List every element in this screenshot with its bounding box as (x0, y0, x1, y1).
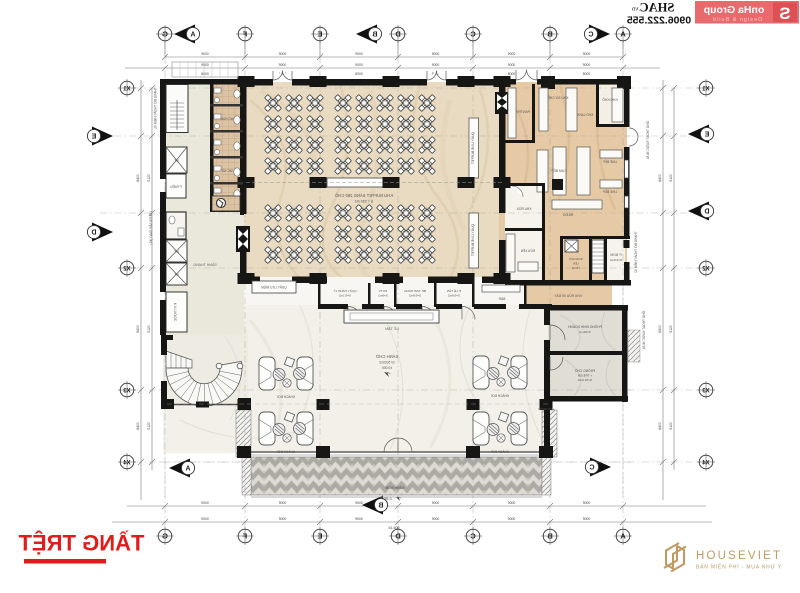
svg-text:PANTRY: PANTRY (515, 110, 530, 114)
svg-text:THANG BỘ THOÁT HIỂM 01: THANG BỘ THOÁT HIỂM 01 (153, 87, 158, 129)
svg-text:0906.222.555: 0906.222.555 (627, 15, 691, 27)
svg-text:WC NAM: WC NAM (220, 117, 234, 121)
svg-text:8000: 8000 (583, 72, 591, 76)
svg-text:9000: 9000 (279, 517, 287, 521)
svg-text:P. LỄ TÂN: P. LỄ TÂN (447, 288, 461, 293)
svg-text:X3: X3 (702, 388, 710, 394)
svg-text:BP. SNH HÀNG: BP. SNH HÀNG (404, 289, 426, 293)
svg-text:KHU BUFFET SÁNG 250 CHỖ: KHU BUFFET SÁNG 250 CHỖ (334, 193, 393, 198)
svg-text:A: A (620, 30, 626, 39)
svg-text:S=9.1m2: S=9.1m2 (339, 294, 351, 298)
svg-text:SOẠN ĐỒ: SOẠN ĐỒ (568, 256, 583, 261)
svg-text:9000: 9000 (355, 52, 363, 56)
svg-text:9000: 9000 (201, 501, 209, 505)
svg-text:9000: 9000 (432, 517, 440, 521)
svg-text:MT: MT (174, 273, 179, 277)
svg-text:F: F (242, 532, 247, 541)
svg-text:X3: X3 (123, 388, 131, 394)
svg-text:E: E (91, 134, 96, 141)
svg-text:C: C (588, 32, 593, 39)
svg-text:X2: X2 (123, 266, 131, 272)
svg-text:LÊN: LÊN (573, 261, 579, 266)
svg-text:G: G (162, 30, 168, 39)
svg-text:THANG BỘ THOÁT HIỂM 02: THANG BỘ THOÁT HIỂM 02 (633, 231, 638, 273)
svg-text:B: B (547, 532, 553, 541)
svg-text:8000: 8000 (508, 72, 516, 76)
svg-text:CỤM BẾP: CỤM BẾP (551, 168, 567, 173)
svg-text:Design & Build: Design & Build (712, 17, 762, 23)
svg-text:S = 530 m2: S = 530 m2 (355, 200, 373, 204)
svg-text:TẦNG TRỆT: TẦNG TRỆT (18, 531, 144, 556)
svg-text:8400: 8400 (136, 174, 140, 182)
svg-text:C: C (589, 465, 594, 472)
svg-text:9000: 9000 (583, 52, 591, 56)
svg-text:onHa Group: onHa Group (704, 4, 765, 16)
svg-text:B: B (378, 503, 383, 510)
svg-text:A: A (190, 32, 195, 39)
svg-text:E: E (317, 30, 322, 39)
svg-text:KHÁCH ĐỢI: KHÁCH ĐỢI (491, 394, 509, 398)
svg-text:8400: 8400 (658, 174, 662, 182)
svg-text:9000: 9000 (432, 501, 440, 505)
svg-text:9000: 9000 (355, 63, 363, 67)
svg-text:S=9.8m2: S=9.8m2 (610, 258, 622, 262)
svg-text:9000: 9000 (279, 52, 287, 56)
svg-text:S=533m2: S=533m2 (379, 361, 394, 365)
svg-text:9000: 9000 (355, 517, 363, 521)
svg-text:D: D (395, 532, 401, 541)
svg-text:S=32.6m2: S=32.6m2 (578, 378, 592, 382)
svg-text:9000: 9000 (508, 63, 516, 67)
svg-text:KHÁCH ĐỢI: KHÁCH ĐỢI (277, 395, 295, 399)
svg-text:9000: 9000 (355, 501, 363, 505)
svg-text:8000: 8000 (355, 72, 363, 76)
svg-text:+ TRẺ EM: + TRẺ EM (577, 373, 592, 378)
svg-text:E: E (704, 132, 709, 139)
svg-text:5120: 5120 (147, 325, 151, 333)
svg-text:8000: 8000 (201, 72, 209, 76)
svg-text:QUẦY LINE BUFFET: QUẦY LINE BUFFET (471, 132, 475, 164)
svg-text:LỄ TÂN: LỄ TÂN (385, 326, 398, 331)
svg-text:PHÒNG KINH DOANH: PHÒNG KINH DOANH (568, 324, 602, 329)
svg-text:9000: 9000 (508, 517, 516, 521)
svg-text:P ĐIỆN: P ĐIỆN (170, 184, 182, 189)
svg-text:S: S (779, 4, 790, 23)
svg-text:9000: 9000 (201, 63, 209, 67)
svg-text:9000: 9000 (201, 517, 209, 521)
svg-text:QUẦY LƯU NIỆM: QUẦY LƯU NIỆM (261, 285, 287, 290)
svg-text:KHO KHÔ: KHO KHÔ (602, 97, 618, 102)
svg-text:9000: 9000 (201, 52, 209, 56)
svg-text:S=61m2: S=61m2 (579, 330, 591, 334)
svg-text:9000: 9000 (583, 501, 591, 505)
svg-text:TẦNG: TẦNG (571, 266, 580, 270)
svg-text:9000: 9000 (508, 52, 516, 56)
svg-text:LINE BẾP: LINE BẾP (603, 159, 617, 164)
svg-text:LINE BẾP: LINE BẾP (603, 189, 617, 194)
svg-text:ỐNG THOÁT NƯỚC MƯA: ỐNG THOÁT NƯỚC MƯA (641, 311, 646, 350)
svg-text:D: D (704, 209, 709, 216)
svg-text:WC NỮ: WC NỮ (221, 168, 232, 173)
svg-text:KHU SƠ CHẾ: KHU SƠ CHẾ (547, 95, 569, 100)
svg-text:RA ĐỒ: RA ĐỒ (562, 212, 573, 217)
svg-text:5120: 5120 (669, 422, 673, 430)
svg-text:S=9.8m2: S=9.8m2 (409, 294, 421, 298)
svg-text:RỬA XÉN: RỬA XÉN (520, 248, 535, 253)
svg-text:LỐI RA SÂN GIAO (K1): LỐI RA SÂN GIAO (K1) (148, 211, 153, 244)
svg-text:C: C (470, 532, 476, 541)
svg-text:QUẦY HÀNH LÝ: QUẦY HÀNH LÝ (334, 289, 357, 293)
svg-text:5120: 5120 (669, 174, 673, 182)
svg-text:X1: X1 (123, 86, 131, 92)
svg-text:QUẦY LINE BUFFET: QUẦY LINE BUFFET (471, 224, 475, 256)
svg-text:SẢNH CHỜ: SẢNH CHỜ (375, 354, 398, 359)
svg-text:C: C (470, 30, 476, 39)
svg-text:P.KTV: P.KTV (378, 289, 387, 293)
svg-text:9000: 9000 (432, 63, 440, 67)
svg-text:KHU RỬA: KHU RỬA (516, 206, 532, 211)
svg-text:SẢNH ĐÓN: SẢNH ĐÓN (385, 485, 404, 490)
svg-text:KHU RỬA XE ĐẨY: KHU RỬA XE ĐẨY (554, 293, 582, 298)
svg-text:A: A (620, 532, 626, 541)
svg-text:KHO LẠNH: KHO LẠNH (576, 113, 593, 117)
svg-text:8400: 8400 (136, 325, 140, 333)
svg-text:5120: 5120 (147, 422, 151, 430)
svg-text:SHAC: SHAC (640, 1, 675, 15)
svg-text:E: E (317, 532, 322, 541)
svg-text:9000: 9000 (432, 52, 440, 56)
svg-text:ỐNG THOÁT NƯỚC MƯA: ỐNG THOÁT NƯỚC MƯA (645, 121, 650, 160)
svg-text:G: G (162, 532, 168, 541)
svg-text:9000: 9000 (279, 63, 287, 67)
svg-text:B: B (372, 32, 377, 39)
svg-text:MT: MT (174, 250, 179, 254)
svg-text:9000: 9000 (583, 517, 591, 521)
svg-text:S=9m2: S=9m2 (378, 294, 388, 298)
svg-text:X4: X4 (702, 460, 710, 466)
svg-text:A: A (185, 466, 190, 473)
svg-text:BẢN MIỄN PHÍ - MUA NHƯ Ý: BẢN MIỄN PHÍ - MUA NHƯ Ý (696, 564, 782, 571)
svg-text:5120: 5120 (147, 174, 151, 182)
svg-text:9000: 9000 (279, 501, 287, 505)
svg-text:P. KT NƯỚC: P. KT NƯỚC (173, 303, 178, 322)
svg-text:F: F (242, 30, 247, 39)
svg-text:8400: 8400 (658, 422, 662, 430)
svg-text:MT: MT (174, 159, 179, 163)
svg-text:P. BƠM: P. BƠM (610, 253, 621, 257)
svg-text:9000: 9000 (583, 63, 591, 67)
svg-text:-0.450: -0.450 (383, 497, 392, 501)
svg-text:.vn: .vn (631, 6, 640, 13)
svg-text:SẢNH THANG: SẢNH THANG (193, 262, 217, 267)
svg-text:S=9.8m2: S=9.8m2 (448, 294, 460, 298)
svg-text:D: D (91, 230, 96, 237)
svg-text:8400: 8400 (136, 422, 140, 430)
svg-text:PHÒNG CHỜ: PHÒNG CHỜ (575, 368, 596, 373)
svg-text:9000: 9000 (508, 501, 516, 505)
svg-text:D: D (395, 30, 401, 39)
svg-text:X2: X2 (702, 266, 710, 272)
svg-text:±0.000: ±0.000 (382, 366, 392, 370)
svg-text:B: B (547, 30, 553, 39)
svg-text:BAR: BAR (498, 297, 505, 301)
svg-text:8400: 8400 (658, 325, 662, 333)
svg-text:X1: X1 (702, 86, 710, 92)
svg-text:5120: 5120 (669, 325, 673, 333)
svg-text:HOUSEVIET: HOUSEVIET (696, 550, 782, 562)
svg-text:X4: X4 (123, 460, 131, 466)
